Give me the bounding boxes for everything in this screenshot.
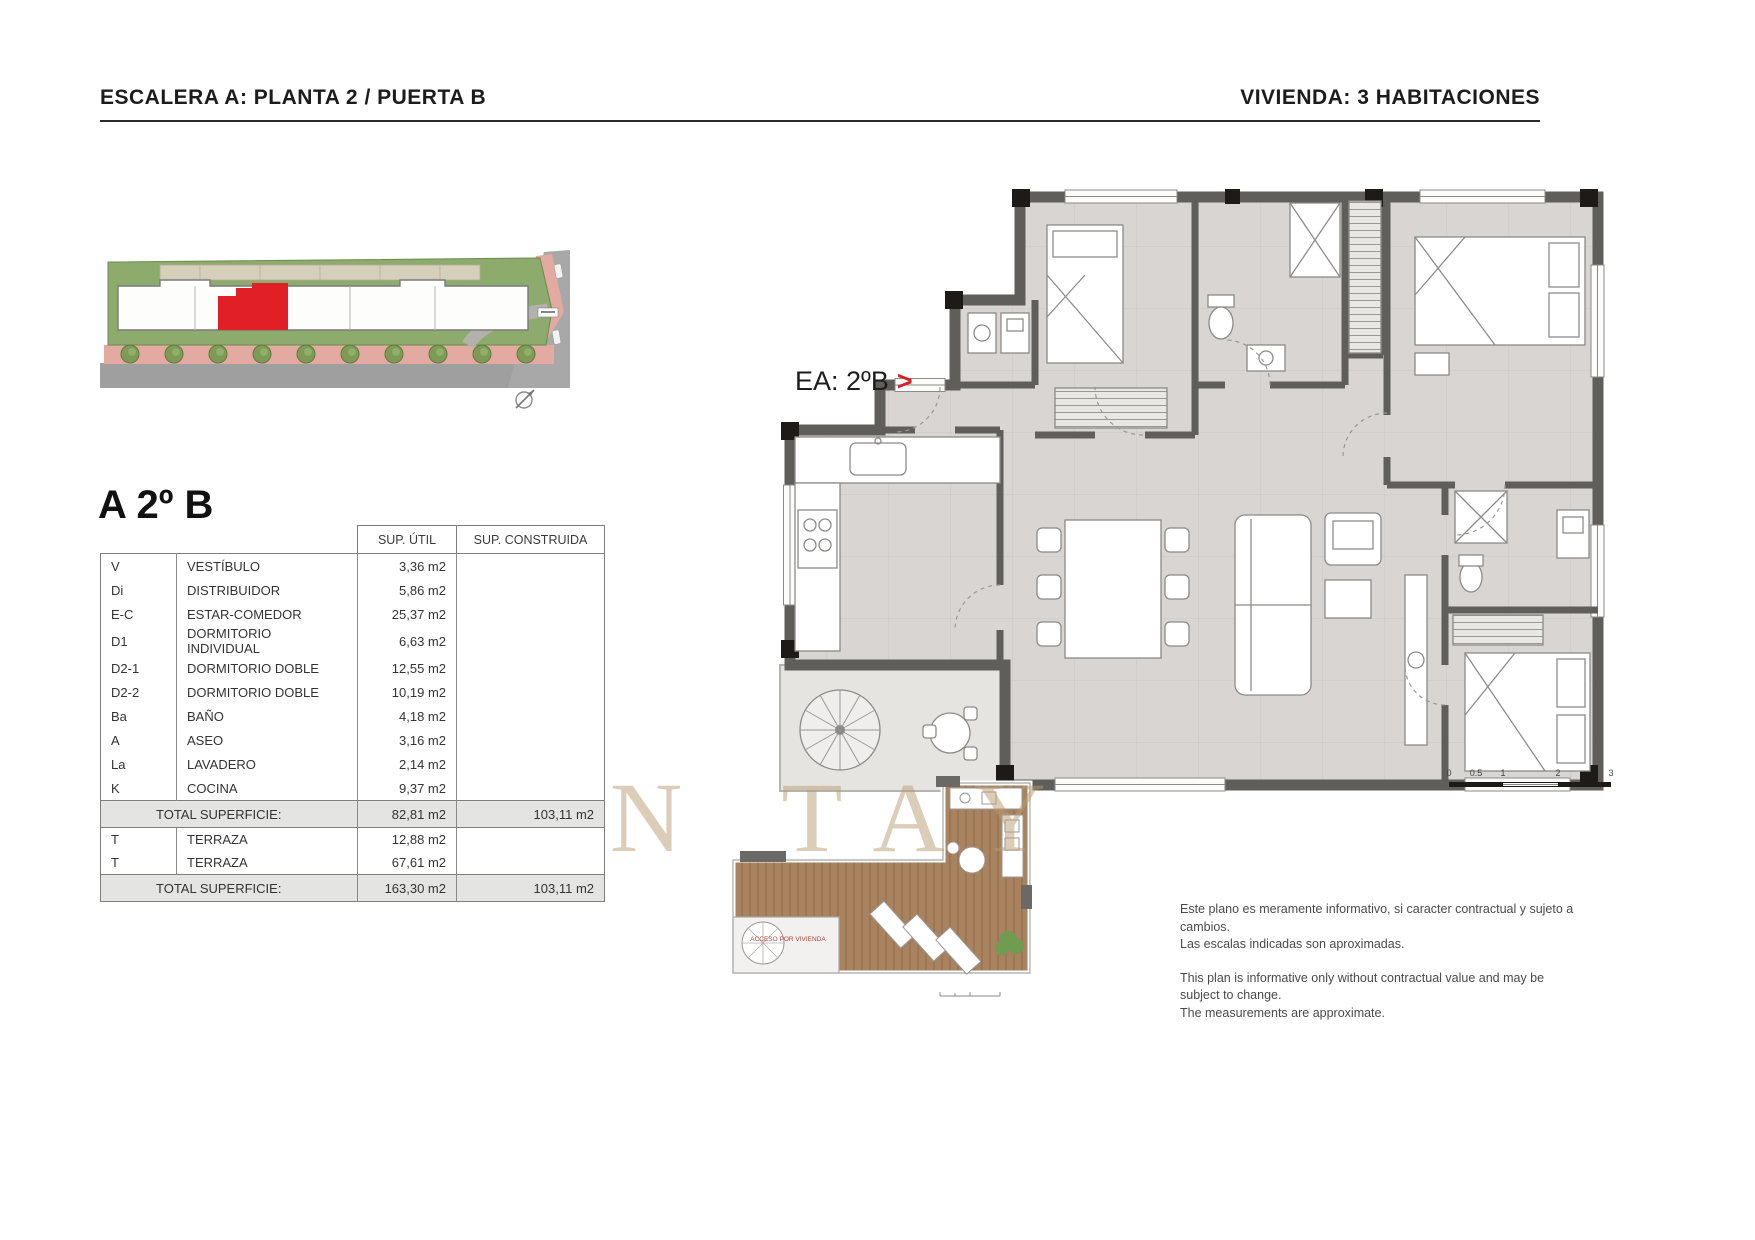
disclaimer-en-line2: The measurements are approximate. [1180, 1005, 1580, 1023]
col-header-util: SUP. ÚTIL [358, 526, 457, 554]
scale-segment [1558, 782, 1611, 787]
table-row: D2-1 DORMITORIO DOBLE 12,55 m2 [101, 656, 605, 680]
plan-unit-label-text: EA: 2ºB [795, 366, 889, 396]
plan-sheet: ESCALERA A: PLANTA 2 / PUERTA B VIVIENDA… [0, 0, 1755, 1240]
scale-tick: 0 [1446, 768, 1451, 778]
terrace-chair [947, 842, 959, 854]
terrace-table [959, 847, 985, 873]
terrace-scale [940, 992, 1000, 996]
disclaimer: Este plano es meramente informativo, si … [1180, 901, 1580, 1038]
table-row: D2-2 DORMITORIO DOBLE 10,19 m2 [101, 680, 605, 704]
col-header-built: SUP. CONSTRUIDA [457, 526, 605, 554]
table-row: V VESTÍBULO 3,36 m2 [101, 554, 605, 579]
table-row: Di DISTRIBUIDOR 5,86 m2 [101, 578, 605, 602]
table-row: Ba BAÑO 4,18 m2 [101, 704, 605, 728]
disclaimer-es-line2: Las escalas indicadas son aproximadas. [1180, 936, 1580, 954]
red-chevron-icon: > [897, 366, 913, 396]
table-row: E-C ESTAR-COMEDOR 25,37 m2 [101, 602, 605, 626]
table-row: A ASEO 3,16 m2 [101, 728, 605, 752]
plan-unit-label: EA: 2ºB> [795, 366, 913, 397]
scale-segment [1503, 782, 1558, 787]
disclaimer-en-line1: This plan is informative only without co… [1180, 970, 1580, 1005]
areas-table: SUP. ÚTIL SUP. CONSTRUIDA V VESTÍBULO 3,… [100, 525, 605, 902]
unit-title: A 2º B [98, 483, 213, 528]
scale-tick: 3 [1608, 768, 1613, 778]
table-row: K COCINA 9,37 m2 [101, 776, 605, 801]
total-row: TOTAL SUPERFICIE: 163,30 m2 103,11 m2 [101, 875, 605, 902]
scale-segment [1449, 782, 1503, 787]
scale-tick: 1 [1500, 768, 1505, 778]
scale-tick: 2 [1555, 768, 1560, 778]
table-row-terrace: T TERRAZA 12,88 m2 [101, 828, 605, 852]
site-plan [100, 250, 570, 388]
table-row: La LAVADERO 2,14 m2 [101, 752, 605, 776]
compass-icon [512, 386, 538, 412]
road [100, 363, 570, 388]
total-row: TOTAL SUPERFICIE: 82,81 m2 103,11 m2 [101, 801, 605, 828]
table-row: D1 DORMITORIO INDIVIDUAL 6,63 m2 [101, 626, 605, 656]
table-row-terrace: T TERRAZA 67,61 m2 [101, 851, 605, 875]
header-rule [100, 120, 1540, 122]
disclaimer-es-line1: Este plano es meramente informativo, si … [1180, 901, 1580, 936]
page-title: ESCALERA A: PLANTA 2 / PUERTA B [100, 86, 486, 110]
scale-bar: 0 0.5 1 2 3 [1447, 768, 1613, 798]
dwelling-type-title: VIVIENDA: 3 HABITACIONES [1100, 86, 1540, 110]
terrace-plan: ACCESO POR VIVIENDA [650, 690, 1065, 1005]
scale-tick: 0.5 [1470, 768, 1483, 778]
terrace-access-label: ACCESO POR VIVIENDA [750, 936, 826, 943]
building-footprint [118, 280, 528, 330]
table-header-row: SUP. ÚTIL SUP. CONSTRUIDA [101, 526, 605, 554]
